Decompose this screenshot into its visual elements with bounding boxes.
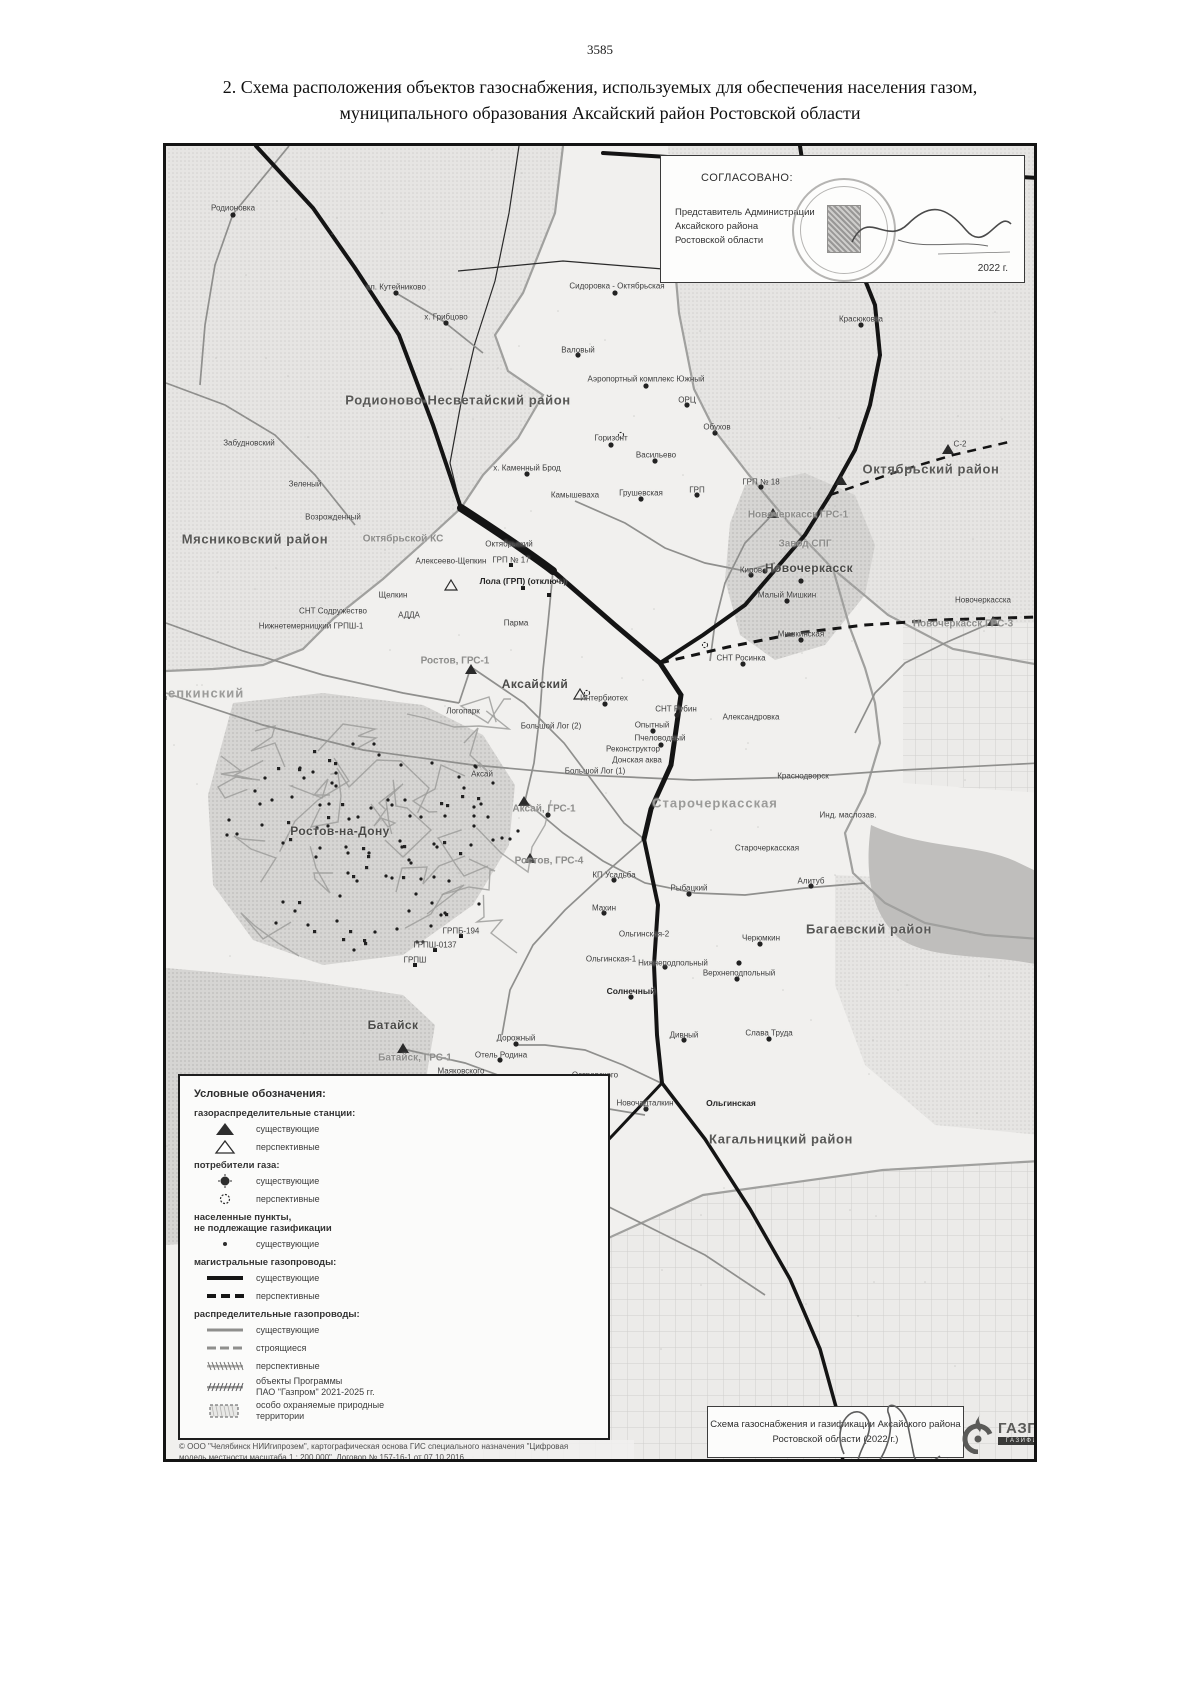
legend-symbol [204,1358,246,1374]
legend-item-label: существующие [256,1325,319,1336]
legend-symbol [204,1191,246,1207]
settlement-label: ОРЦ [678,396,695,405]
legend-group: распределительные газопроводы:существующ… [194,1309,594,1422]
legend-symbol-rect-dash-icon [204,1403,246,1419]
legend-symbol-part [220,1347,229,1350]
settlement-label: Ольгинская-1 [586,955,636,964]
settlement-label: Новочеркасск ГРС-3 [913,619,1013,630]
settlement-label: Лола (ГРП) (отключ.) [480,576,567,586]
legend-symbol-part [221,1177,230,1186]
copyright-note: © ООО "Челябинск НИИгипрозем", картограф… [176,1440,634,1462]
gas-supply-map: Родионовкасл. Кутейниковох. ГрибцовоСидо… [163,143,1037,1462]
legend-symbol [204,1379,246,1395]
gazprom-flame-icon [961,1412,995,1454]
approval-stamp-box: СОГЛАСОВАНО: Представитель Администрации… [660,155,1025,283]
settlement-label: Ростов, ГРС-4 [515,856,584,867]
legend-symbol-part [216,1123,234,1135]
settlement-label: Верхнеподпольный [703,969,775,978]
legend-item: особо охраняемые природные территории [204,1400,594,1422]
city-label: Аксайский [502,677,568,691]
settlement-label: х. Каменный Брод [493,464,560,473]
legend-symbol-line-hatch2-icon [204,1379,246,1395]
district-label: Кагальницкий район [709,1132,853,1147]
settlement-label: Отель Родина [475,1051,527,1060]
settlement-label: Алитуб [798,877,825,886]
legend-item-label: существующие [256,1239,319,1250]
legend-item: существующие [204,1270,594,1286]
settlement-label: Рыбацкий [671,884,708,893]
legend-symbol-part [216,1141,234,1153]
legend-symbol [204,1139,246,1155]
legend-item: перспективные [204,1139,594,1155]
settlement-label: Старочеркасская [735,844,799,853]
settlement-label: Парма [504,619,529,628]
settlement-label: Дорожный [497,1034,536,1043]
settlement-label: ГРП № 17 [492,556,529,565]
settlement-label: Большой Лог (2) [521,722,582,731]
settlement-label: Забудновский [223,439,275,448]
settlement-label: ГРПБ-194 [443,927,480,936]
legend-item-label: существующие [256,1273,319,1284]
legend-symbol [204,1403,246,1419]
legend-item-label: перспективные [256,1291,320,1302]
settlement-label: Черюмкин [742,934,780,943]
legend-symbol [204,1340,246,1356]
legend-group-heading: магистральные газопроводы: [194,1257,594,1268]
legend-item-label: перспективные [256,1361,320,1372]
settlement-label: Дивный [670,1031,699,1040]
settlement-label: Камышеваха [551,491,599,500]
settlement-label: Зеленый [289,480,322,489]
legend-item-label: строящиеся [256,1343,306,1354]
legend-symbol-tri-o-icon [204,1139,246,1155]
settlement-label: Возрожденный [305,513,361,522]
legend-box: Условные обозначения: газораспределитель… [178,1074,610,1440]
legend-symbol-part [221,1195,230,1204]
legend-symbol-part [207,1294,216,1298]
settlement-label: СНТ Рубин [655,705,697,714]
legend-symbol-cir-icon [204,1173,246,1189]
settlement-label: Новочеркасск ГРС-1 [748,510,848,521]
city-label: Ростов-на-Дону [290,824,389,838]
legend-groups: газораспределительные станции:существующ… [194,1108,594,1422]
settlement-label: Логопарк [446,707,480,716]
settlement-label: Аксай [471,770,493,779]
district-label: Мясниковский район [182,532,329,547]
settlement-label: Слава Труда [745,1029,792,1038]
settlement-label: Нижнетемерницкий ГРПШ-1 [259,622,364,631]
settlement-label: С-2 [954,440,967,449]
settlement-label: Пчеловодный [634,734,685,743]
settlement-label: Интербиотех [580,694,628,703]
gazprom-logo-text: ГАЗПРОМ ГАЗИФИКАЦИЯ [998,1421,1037,1445]
legend-item: перспективные [204,1191,594,1207]
settlement-label: ГРП № 18 [742,478,779,487]
legend-group-heading: распределительные газопроводы: [194,1309,594,1320]
settlement-label: Сидоровка - Октябрьская [569,282,664,291]
settlement-label: Александровка [723,713,780,722]
legend-symbol-line-black-dash-icon [204,1288,246,1304]
settlement-label: Аксай, ГРС-1 [512,804,575,815]
legend-item-label: объекты Программы ПАО "Газпром" 2021-202… [256,1376,375,1398]
settlement-label: Опытный [635,721,670,730]
legend-item: перспективные [204,1358,594,1374]
settlement-label: Щепкинский [163,686,244,701]
settlement-label: х. Грибцово [424,313,467,322]
city-label: Новочеркасск [765,561,853,575]
page-title-line1: 2. Схема расположения объектов газоснабж… [0,74,1200,100]
settlement-label: Солнечный [607,986,656,996]
settlement-label: Завод СПГ [778,539,831,550]
legend-group: газораспределительные станции:существующ… [194,1108,594,1155]
legend-title: Условные обозначения: [194,1088,594,1100]
document-page: 3585 2. Схема расположения объектов газо… [0,0,1200,1698]
settlement-label: Красюковка [839,315,883,324]
legend-symbol-part [221,1294,230,1298]
page-title: 2. Схема расположения объектов газоснабж… [0,74,1200,126]
settlement-label: СНТ Содружество [299,607,367,616]
settlement-label: Реконструктор [606,745,660,754]
copyright-line1: © ООО "Челябинск НИИгипрозем", картограф… [179,1441,631,1452]
legend-item-label: перспективные [256,1142,320,1153]
legend-symbol-part [235,1294,244,1298]
settlement-label: Ольгинская-2 [619,930,669,939]
settlement-label: Батайск, ГРС-1 [378,1053,452,1064]
legend-group-heading: газораспределительные станции: [194,1108,594,1119]
legend-group-heading: населенные пункты, не подлежащие газифик… [194,1212,594,1234]
legend-item: строящиеся [204,1340,594,1356]
legend-symbol-line-black-icon [204,1270,246,1286]
settlement-label: Обухов [703,423,730,432]
legend-symbol-tri-icon [204,1121,246,1137]
settlement-label: ГРПШ [404,956,427,965]
legend-item: объекты Программы ПАО "Газпром" 2021-202… [204,1376,594,1398]
legend-item: существующие [204,1322,594,1338]
legend-symbol-part [207,1347,216,1350]
settlement-label: Махин [592,904,616,913]
legend-symbol [204,1322,246,1338]
settlement-label: КП Усадьба [592,871,635,880]
copyright-line2: модель местности масштаба 1 : 200 000", … [179,1452,631,1462]
signature-bottom [814,1376,964,1462]
gazprom-name: ГАЗПРОМ [998,1421,1037,1436]
page-number: 3585 [0,42,1200,58]
settlement-label: Родионовка [211,204,255,213]
legend-item: существующие [204,1121,594,1137]
city-label: Батайск [368,1018,419,1032]
settlement-label: АДДА [398,611,420,620]
settlement-label: ГРП [689,486,704,495]
settlement-label: Алексеево-Щепкин [416,557,487,566]
legend-item-label: перспективные [256,1194,320,1205]
legend-symbol-line-gray-dash-icon [204,1340,246,1356]
legend-symbol-part [233,1347,242,1350]
legend-item: существующие [204,1173,594,1189]
district-label: Октябрьский район [862,462,999,477]
legend-group: магистральные газопроводы:существующиепе… [194,1257,594,1304]
settlement-label: Октябрьской КС [363,534,444,545]
settlement-label: Старочеркасская [652,796,778,811]
legend-symbol-dot-icon [204,1236,246,1252]
settlement-label: Щелкин [379,591,408,600]
settlement-label: Донская аква [612,756,662,765]
settlement-label: Новочеркасска [955,596,1011,605]
settlement-label: Новочадталкин [616,1099,673,1108]
page-title-line2: муниципального образования Аксайский рай… [0,100,1200,126]
settlement-label: Горизонт [594,434,627,443]
settlement-label: сл. Кутейниково [366,283,426,292]
settlement-label: Мишкинская [778,630,824,639]
settlement-label: Ольгинская [706,1098,756,1108]
settlement-label: Валовый [561,346,594,355]
settlement-label: Октябрьский [485,540,532,549]
legend-group: потребители газа:существующиеперспективн… [194,1160,594,1207]
district-label: Багаевский район [806,922,932,937]
legend-item: перспективные [204,1288,594,1304]
settlement-label: Инд. маслозав. [820,811,877,820]
legend-symbol [204,1236,246,1252]
legend-symbol-part [207,1276,243,1280]
gazprom-subtitle: ГАЗИФИКАЦИЯ [998,1437,1037,1445]
settlement-label: Киров [740,566,762,575]
gazprom-logo: ГАЗПРОМ ГАЗИФИКАЦИЯ [961,1412,1037,1454]
legend-symbol [204,1270,246,1286]
settlement-label: Грушевская [619,489,663,498]
settlement-label: Нижнеподпольный [638,959,708,968]
legend-symbol [204,1121,246,1137]
settlement-label: Большой Лог (1) [565,767,626,776]
district-label: Родионово-Несветайский район [345,393,570,408]
legend-symbol-line-gray-icon [204,1322,246,1338]
legend-item-label: особо охраняемые природные территории [256,1400,384,1422]
legend-symbol [204,1173,246,1189]
settlement-label: ГРПШ-0137 [413,941,456,950]
legend-symbol-cir-o-icon [204,1191,246,1207]
legend-symbol-part [207,1329,243,1332]
legend-symbol [204,1288,246,1304]
legend-group-heading: потребители газа: [194,1160,594,1171]
settlement-label: СНТ Росинка [716,654,765,663]
legend-symbol-part [223,1242,227,1246]
legend-item-label: существующие [256,1176,319,1187]
approval-heading: СОГЛАСОВАНО: [701,172,793,184]
legend-group: населенные пункты, не подлежащие газифик… [194,1212,594,1252]
signature-approval [846,194,1016,266]
settlement-label: Васильево [636,451,676,460]
settlement-label: Малый Мишкин [758,591,816,600]
legend-item-label: существующие [256,1124,319,1135]
settlement-label: Аэропортный комплекс Южный [588,375,705,384]
legend-symbol-line-hatch-icon [204,1358,246,1374]
settlement-label: Ростов, ГРС-1 [421,656,490,667]
settlement-label: Краснодворск [777,772,828,781]
legend-item: существующие [204,1236,594,1252]
